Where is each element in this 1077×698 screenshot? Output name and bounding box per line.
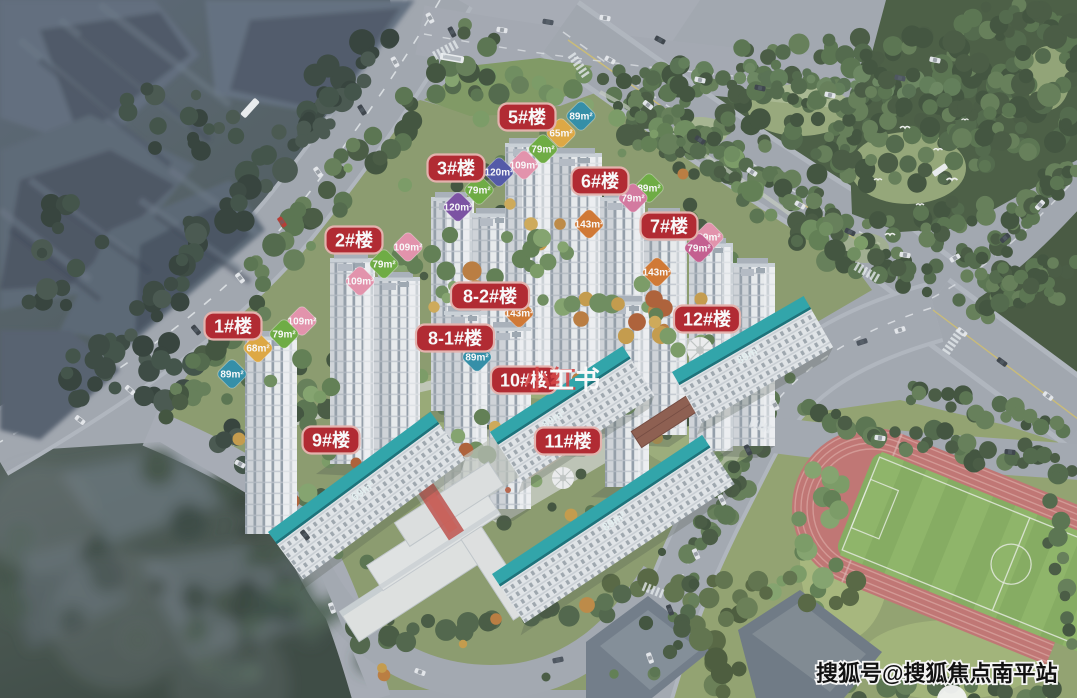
svg-text:搜狐号@搜狐焦点南平站: 搜狐号@搜狐焦点南平站: [816, 661, 1057, 686]
